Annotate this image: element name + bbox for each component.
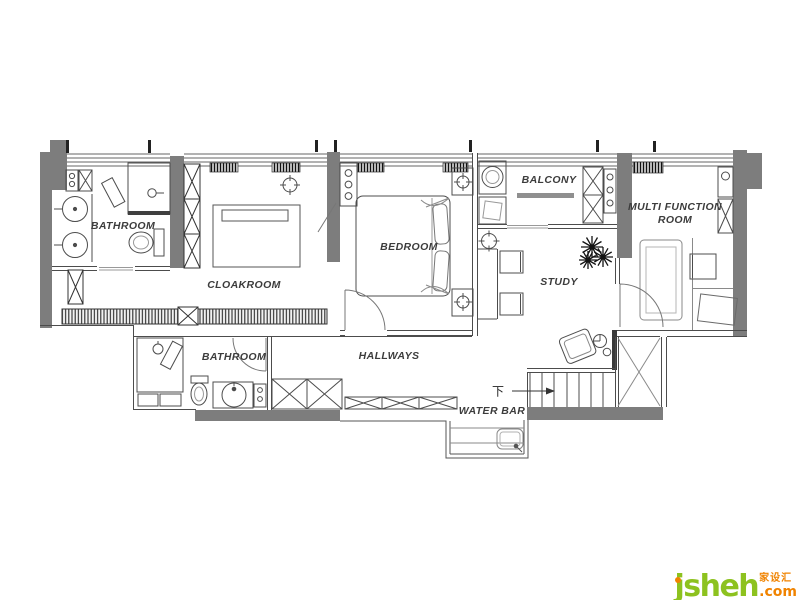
plant-icon [579,236,613,269]
watermark-tld: .com [759,585,797,599]
bathroom-1-fixtures [54,163,170,270]
mfr-furniture [640,167,737,330]
floor-plan-page: BATHROOM CLOAKROOM BEDROOM BALCONY MULTI… [0,0,800,600]
room-label-bathroom-1: BATHROOM [91,220,155,232]
watermark-logo: jsheh 家设汇 .com [674,574,797,599]
watermark-brand: jsheh [674,575,758,599]
watermark-brand-rest: sheh [683,569,758,600]
room-label-cloakroom: CLOAKROOM [207,279,281,291]
room-label-study: STUDY [540,276,578,288]
room-label-bedroom: BEDROOM [380,241,438,253]
hallway-cabinets [272,379,457,409]
room-label-bathroom-2: BATHROOM [202,351,266,363]
room-label-balcony: BALCONY [522,174,577,186]
outer-walls [40,140,762,421]
room-label-water-bar: WATER BAR [459,405,525,417]
stairs-down-label: 下 [492,383,504,400]
floor-plan-drawing [0,0,800,600]
room-label-multi-function-room: MULTI FUNCTION ROOM [622,201,728,227]
stairs-down-arrow [512,388,555,395]
bathroom-2-fixtures [137,338,266,408]
watermark-cjk-name: 家设汇 [759,574,792,584]
water-bar-area [340,420,528,458]
door-swings [233,284,663,371]
room-label-hallways: HALLWAYS [359,350,420,362]
study-furniture [478,236,615,373]
wardrobe-rails [62,164,327,325]
drying-rail-icon [517,193,574,198]
cloakroom-island [213,203,336,267]
interior-walls [40,153,747,410]
water-bar-sink-icon [497,429,523,452]
balcony-fixtures [479,161,616,228]
desk-chair-icon [558,328,611,365]
watermark-brand-j: j [674,569,683,600]
